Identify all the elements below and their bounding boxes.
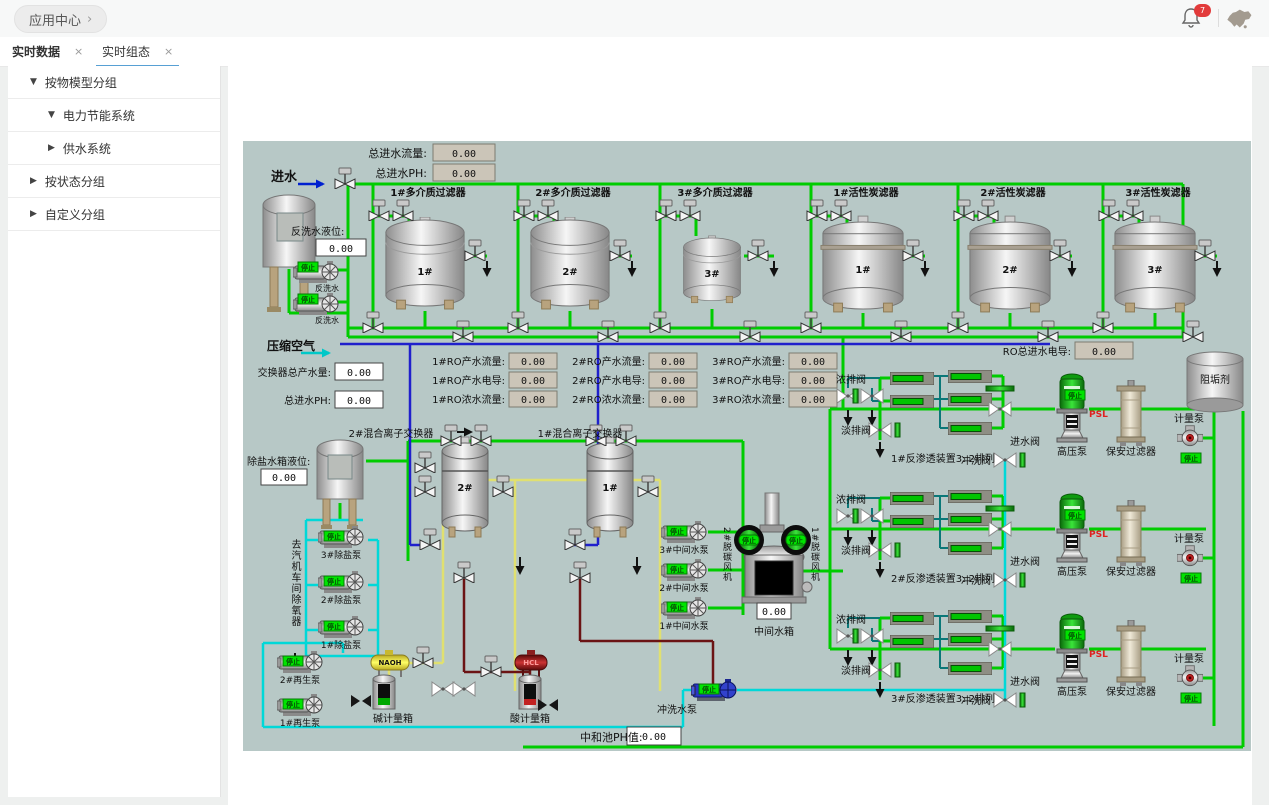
svg-text:2#RO浓水流量:: 2#RO浓水流量:: [572, 393, 645, 406]
chevron-right-icon: ▶: [30, 176, 37, 186]
svg-text:0.00: 0.00: [521, 376, 545, 387]
sidebar-item-label: 按状态分组: [45, 173, 105, 190]
security-filter-1[interactable]: [1117, 380, 1145, 446]
svg-text:1#: 1#: [602, 483, 617, 494]
svg-text:保安过滤器: 保安过滤器: [1106, 565, 1156, 578]
svg-text:3#除盐泵: 3#除盐泵: [321, 549, 361, 561]
svg-text:0.00: 0.00: [762, 607, 786, 618]
svg-text:2#混合离子交换器: 2#混合离子交换器: [349, 427, 434, 440]
alkali-valve[interactable]: [413, 647, 433, 668]
svg-text:停止: 停止: [327, 532, 341, 541]
svg-text:停止: 停止: [327, 622, 341, 631]
svg-text:保安过滤器: 保安过滤器: [1106, 445, 1156, 458]
svg-text:浓排阀: 浓排阀: [836, 373, 866, 386]
svg-text:计量泵: 计量泵: [1174, 652, 1204, 665]
svg-text:停止: 停止: [742, 536, 756, 545]
svg-text:0.00: 0.00: [801, 395, 825, 406]
svg-text:淡排阀: 淡排阀: [841, 544, 871, 557]
svg-text:3#: 3#: [704, 269, 719, 280]
decarb-fan-1-label: 1#脱碳风机: [808, 527, 821, 582]
svg-text:总进水PH:: 总进水PH:: [284, 394, 331, 407]
app-center-button[interactable]: 应用中心 ›: [14, 5, 107, 33]
svg-text:除盐水箱液位:: 除盐水箱液位:: [247, 455, 310, 468]
svg-text:总进水流量:: 总进水流量:: [368, 146, 427, 160]
svg-text:停止: 停止: [1184, 694, 1198, 703]
svg-text:冲洗阀: 冲洗阀: [961, 574, 991, 587]
svg-text:3#: 3#: [1147, 265, 1162, 276]
svg-text:进水阀: 进水阀: [1010, 435, 1040, 448]
sidebar-item-label: 按物模型分组: [45, 74, 117, 91]
svg-text:高压泵: 高压泵: [1057, 445, 1087, 458]
mm-filter-tank-2[interactable]: [531, 217, 609, 309]
svg-text:冲洗阀: 冲洗阀: [961, 694, 991, 707]
svg-text:高压泵: 高压泵: [1057, 685, 1087, 698]
top-header: 应用中心 › 7: [0, 0, 1269, 37]
svg-text:交换器总产水量:: 交换器总产水量:: [258, 366, 331, 379]
svg-text:酸计量箱: 酸计量箱: [510, 712, 550, 725]
svg-text:浓排阀: 浓排阀: [836, 613, 866, 626]
main-content: 停止 停止 停止 停止 停止 停止 停止 停止 停止 停止 停止 停止 停止 停…: [228, 66, 1252, 805]
security-filter-3[interactable]: [1117, 620, 1145, 686]
svg-text:1#活性炭滤器: 1#活性炭滤器: [833, 186, 899, 199]
filter-valves[interactable]: [335, 168, 1215, 342]
tab-realtime-data[interactable]: 实时数据 ×: [6, 37, 89, 65]
svg-text:总进水PH:: 总进水PH:: [375, 166, 427, 180]
chevron-right-icon: ›: [87, 12, 92, 27]
svg-text:停止: 停止: [1184, 574, 1198, 583]
svg-text:计量泵: 计量泵: [1174, 412, 1204, 425]
notification-badge: 7: [1194, 4, 1211, 17]
close-icon[interactable]: ×: [74, 45, 83, 58]
svg-text:NAOH: NAOH: [378, 659, 401, 667]
sidebar-tree: ▼ 按物模型分组 ▼ 电力节能系统 ▶ 供水系统 ▶ 按状态分组 ▶ 自定义分组: [8, 66, 221, 797]
app-center-label: 应用中心: [29, 10, 81, 29]
svg-text:1#RO浓水流量:: 1#RO浓水流量:: [432, 393, 505, 406]
svg-text:1#中间水泵: 1#中间水泵: [659, 620, 708, 632]
svg-text:0.00: 0.00: [801, 376, 825, 387]
alkali-x-valve[interactable]: [432, 682, 454, 696]
sidebar-item-model-group[interactable]: ▼ 按物模型分组: [8, 66, 220, 99]
svg-text:淡排阀: 淡排阀: [841, 424, 871, 437]
svg-text:停止: 停止: [1068, 391, 1082, 400]
svg-text:2#除盐泵: 2#除盐泵: [321, 594, 361, 606]
sidebar-item-label: 自定义分组: [45, 206, 105, 223]
svg-text:停止: 停止: [301, 263, 315, 272]
mixer-icon: [351, 695, 371, 707]
svg-text:0.00: 0.00: [521, 395, 545, 406]
svg-text:反洗水液位:: 反洗水液位:: [291, 225, 344, 238]
svg-text:1#: 1#: [417, 267, 432, 278]
sidebar-item-label: 供水系统: [63, 140, 111, 157]
svg-text:3#RO浓水流量:: 3#RO浓水流量:: [712, 393, 785, 406]
china-map-icon[interactable]: [1225, 8, 1253, 34]
svg-text:进水阀: 进水阀: [1010, 675, 1040, 688]
svg-text:淡排阀: 淡排阀: [841, 664, 871, 677]
pipes-maroon: [464, 579, 713, 697]
svg-text:浓排阀: 浓排阀: [836, 493, 866, 506]
svg-text:中和池PH值:: 中和池PH值:: [580, 731, 643, 744]
svg-text:0.00: 0.00: [661, 395, 685, 406]
mm-filter-tank-1[interactable]: [386, 217, 464, 309]
psl-alarm: PSL: [1089, 530, 1108, 540]
svg-text:停止: 停止: [286, 700, 300, 709]
svg-text:1#除盐泵: 1#除盐泵: [321, 639, 361, 651]
svg-text:3#RO产水电导:: 3#RO产水电导:: [712, 374, 785, 387]
tab-label: 实时数据: [12, 43, 60, 60]
svg-text:0.00: 0.00: [642, 732, 666, 743]
svg-text:3#中间水泵: 3#中间水泵: [659, 544, 708, 556]
svg-text:2#: 2#: [562, 267, 577, 278]
to-deaerator-label: 去汽机车间除氧器: [287, 539, 302, 627]
scada-diagram: 停止 停止 停止 停止 停止 停止 停止 停止 停止 停止 停止 停止 停止 停…: [243, 141, 1251, 751]
svg-text:碱计量箱: 碱计量箱: [373, 712, 413, 725]
hp-pump-1[interactable]: [1057, 374, 1087, 442]
svg-text:进水: 进水: [271, 169, 298, 185]
svg-text:2#多介质过滤器: 2#多介质过滤器: [535, 186, 611, 199]
svg-text:1#RO产水电导:: 1#RO产水电导:: [432, 374, 505, 387]
svg-text:停止: 停止: [301, 295, 315, 304]
svg-text:反洗水: 反洗水: [315, 283, 339, 293]
acid-metering-tank[interactable]: [519, 675, 541, 709]
alkali-metering-tank[interactable]: [373, 675, 395, 709]
svg-text:0.00: 0.00: [1092, 347, 1116, 358]
svg-text:3#多介质过滤器: 3#多介质过滤器: [677, 186, 753, 199]
sidebar-item-water-supply[interactable]: ▶ 供水系统: [8, 132, 220, 165]
svg-text:2#: 2#: [1002, 265, 1017, 276]
svg-text:2#RO产水电导:: 2#RO产水电导:: [572, 374, 645, 387]
svg-text:3#活性炭滤器: 3#活性炭滤器: [1125, 186, 1191, 199]
svg-text:停止: 停止: [1068, 511, 1082, 520]
psl-alarm: PSL: [1089, 650, 1108, 660]
svg-text:0.00: 0.00: [272, 473, 296, 484]
svg-text:停止: 停止: [670, 527, 684, 536]
chevron-down-icon: ▼: [48, 110, 55, 120]
svg-text:RO总进水电导:: RO总进水电导:: [1003, 345, 1071, 358]
svg-text:2#RO产水流量:: 2#RO产水流量:: [572, 355, 645, 368]
svg-text:1#再生泵: 1#再生泵: [280, 717, 320, 729]
svg-text:停止: 停止: [789, 536, 803, 545]
svg-text:0.00: 0.00: [801, 357, 825, 368]
svg-text:进水阀: 进水阀: [1010, 555, 1040, 568]
chevron-right-icon: ▶: [48, 143, 55, 153]
svg-text:停止: 停止: [702, 685, 716, 694]
svg-text:3#RO产水流量:: 3#RO产水流量:: [712, 355, 785, 368]
chevron-down-icon: ▼: [30, 77, 37, 87]
svg-text:0.00: 0.00: [329, 244, 353, 255]
close-icon[interactable]: ×: [164, 45, 173, 58]
sidebar-item-status-group[interactable]: ▶ 按状态分组: [8, 165, 220, 198]
svg-text:冲洗水泵: 冲洗水泵: [657, 703, 697, 716]
acid-valve[interactable]: [481, 656, 501, 677]
tab-label: 实时组态: [102, 43, 150, 60]
tab-bar: 实时数据 × 实时组态 ×: [0, 37, 1269, 67]
sidebar-item-power-saving[interactable]: ▼ 电力节能系统: [8, 99, 220, 132]
svg-text:0.00: 0.00: [452, 169, 476, 180]
svg-text:反洗水: 反洗水: [315, 315, 339, 325]
svg-text:压缩空气: 压缩空气: [267, 338, 315, 353]
svg-text:计量泵: 计量泵: [1174, 532, 1204, 545]
sidebar-item-custom-group[interactable]: ▶ 自定义分组: [8, 198, 220, 231]
svg-text:1#: 1#: [855, 265, 870, 276]
metering-pump-3[interactable]: [1177, 666, 1203, 686]
metering-pump-1[interactable]: [1177, 426, 1203, 446]
sidebar-item-label: 电力节能系统: [63, 107, 135, 124]
svg-text:HCL: HCL: [523, 659, 539, 667]
decarb-fan-2-label: 2#脱碳风机: [720, 527, 733, 582]
svg-text:停止: 停止: [670, 565, 684, 574]
svg-text:高压泵: 高压泵: [1057, 565, 1087, 578]
svg-text:0.00: 0.00: [347, 368, 371, 379]
svg-text:中间水箱: 中间水箱: [754, 625, 794, 638]
psl-alarm: PSL: [1089, 410, 1108, 420]
svg-text:2#中间水泵: 2#中间水泵: [659, 582, 708, 594]
svg-text:0.00: 0.00: [347, 396, 371, 407]
svg-text:保安过滤器: 保安过滤器: [1106, 685, 1156, 698]
svg-text:停止: 停止: [670, 603, 684, 612]
svg-text:1#RO产水流量:: 1#RO产水流量:: [432, 355, 505, 368]
svg-text:0.00: 0.00: [452, 149, 476, 160]
metering-pump-2[interactable]: [1177, 546, 1203, 566]
acid-x-valve[interactable]: [453, 682, 475, 696]
security-filter-2[interactable]: [1117, 500, 1145, 566]
svg-text:2#活性炭滤器: 2#活性炭滤器: [980, 186, 1046, 199]
svg-text:阻垢剂: 阻垢剂: [1200, 373, 1230, 386]
svg-text:停止: 停止: [286, 657, 300, 666]
svg-text:冲洗阀: 冲洗阀: [961, 454, 991, 467]
tab-realtime-scada[interactable]: 实时组态 ×: [96, 37, 179, 67]
notification-bell-button[interactable]: 7: [1181, 7, 1207, 31]
hp-pump-3[interactable]: [1057, 614, 1087, 682]
svg-text:停止: 停止: [1184, 454, 1198, 463]
hp-pump-2[interactable]: [1057, 494, 1087, 562]
header-divider: [1218, 9, 1219, 27]
svg-text:0.00: 0.00: [661, 376, 685, 387]
svg-text:2#: 2#: [457, 483, 472, 494]
svg-text:0.00: 0.00: [521, 357, 545, 368]
svg-text:0.00: 0.00: [661, 357, 685, 368]
svg-text:2#再生泵: 2#再生泵: [280, 674, 320, 686]
svg-text:1#混合离子交换器: 1#混合离子交换器: [538, 427, 623, 440]
svg-text:1#多介质过滤器: 1#多介质过滤器: [390, 186, 466, 199]
chevron-right-icon: ▶: [30, 209, 37, 219]
svg-text:停止: 停止: [327, 577, 341, 586]
svg-text:停止: 停止: [1068, 631, 1082, 640]
